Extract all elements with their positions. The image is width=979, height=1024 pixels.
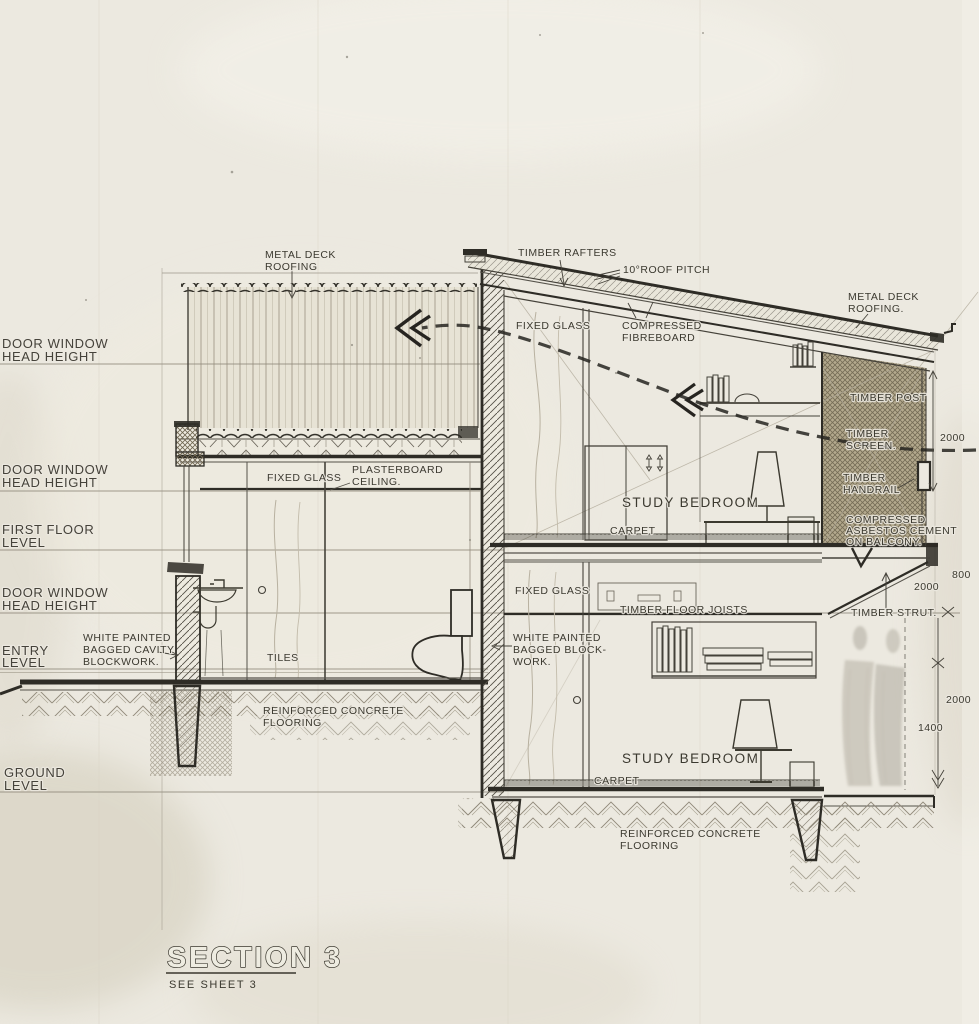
section-drawing-sheet: DOOR WINDOW HEAD HEIGHT DOOR WINDOW HEAD… [0,0,979,1024]
level-label: LEVEL [2,535,45,550]
label-fixed-glass-upper: FIXED GLASS [516,320,590,332]
label-block-wall: WHITE PAINTED [513,632,601,644]
label-cavity-wall: WHITE PAINTED [83,632,171,644]
right-wing-left-wall [482,266,504,796]
label-fibreboard: COMPRESSED [622,320,702,332]
label-metal-deck-left-2: ROOFING [265,261,318,273]
label-plasterboard: PLASTERBOARD [352,464,443,476]
label-timber-strut: TIMBER STRUT. [851,607,937,619]
dim-800: 800 [952,569,971,581]
label-block-wall-3: WORK. [513,656,551,668]
dim-2000-lower: 2000 [946,694,971,706]
footing-left [492,800,520,858]
label-carpet-lower: CARPET [594,775,640,787]
corrugated-wall-top-edge [181,283,477,292]
label-tiles: TILES [267,652,299,664]
label-metal-deck-right: METAL DECK [848,291,919,303]
label-timber-handrail: TIMBER [843,472,886,484]
level-label: LEVEL [2,655,45,670]
label-cavity-wall-2: BAGGED CAVITY [83,644,175,656]
door-handle [574,697,581,704]
label-rc-floor-left-2: FLOORING [263,717,322,729]
pedestal-table-lamp [733,700,814,787]
label-timber-screen: TIMBER [846,428,889,440]
bookshelf [652,622,816,678]
label-fixed-glass-lower: FIXED GLASS [515,585,589,597]
drawing-subtitle: SEE SHEET 3 [169,979,257,991]
table-lamp [733,700,777,748]
label-metal-deck-left: METAL DECK [265,249,336,261]
left-footing [174,686,200,766]
pencil-figures [842,626,905,786]
label-rc-floor-right: REINFORCED CONCRETE [620,828,761,840]
label-timber-post: TIMBER POST [850,392,927,404]
lower-carpet [504,780,820,786]
label-fixed-glass-left: FIXED GLASS [267,472,341,484]
roof-apex-cap [463,249,487,255]
label-room-lower: STUDY BEDROOM [622,751,759,766]
handrail-block [918,462,930,490]
drawing-title: SECTION 3 [167,942,343,974]
label-plasterboard-2: CEILING. [352,476,401,488]
label-fibreboard-2: FIBREBOARD [622,332,695,344]
level-label: LEVEL [4,778,47,793]
label-timber-handrail-2: HANDRAIL [843,484,900,496]
label-block-wall-2: BAGGED BLOCK- [513,644,606,656]
level-label: HEAD HEIGHT [2,598,97,613]
foundations [458,789,934,892]
label-timber-rafters: TIMBER RAFTERS [518,247,617,259]
dim-1400: 1400 [918,722,943,734]
label-asbestos-3: ON BALCONY. [846,536,922,548]
label-cavity-wall-3: BLOCKWORK. [83,656,159,668]
label-room-upper: STUDY BEDROOM [622,495,759,510]
dim-2000-upper: 2000 [940,432,965,444]
dim-2000-mid: 2000 [914,581,939,593]
level-label: HEAD HEIGHT [2,475,97,490]
label-timber-screen-2: SCREEN. [846,440,896,452]
down-arrow-icon [852,548,872,566]
section-drawing-svg: DOOR WINDOW HEAD HEIGHT DOOR WINDOW HEAD… [0,0,979,1024]
level-label: HEAD HEIGHT [2,349,97,364]
label-rc-floor-left: REINFORCED CONCRETE [263,705,404,717]
label-metal-deck-right-2: ROOFING. [848,303,904,315]
label-roof-pitch: 10°ROOF PITCH [623,264,710,276]
label-floor-joists: TIMBER FLOOR JOISTS [620,604,748,616]
label-carpet-upper: CARPET [610,525,656,537]
label-rc-floor-right-2: FLOORING [620,840,679,852]
upper-carpet [504,534,822,540]
